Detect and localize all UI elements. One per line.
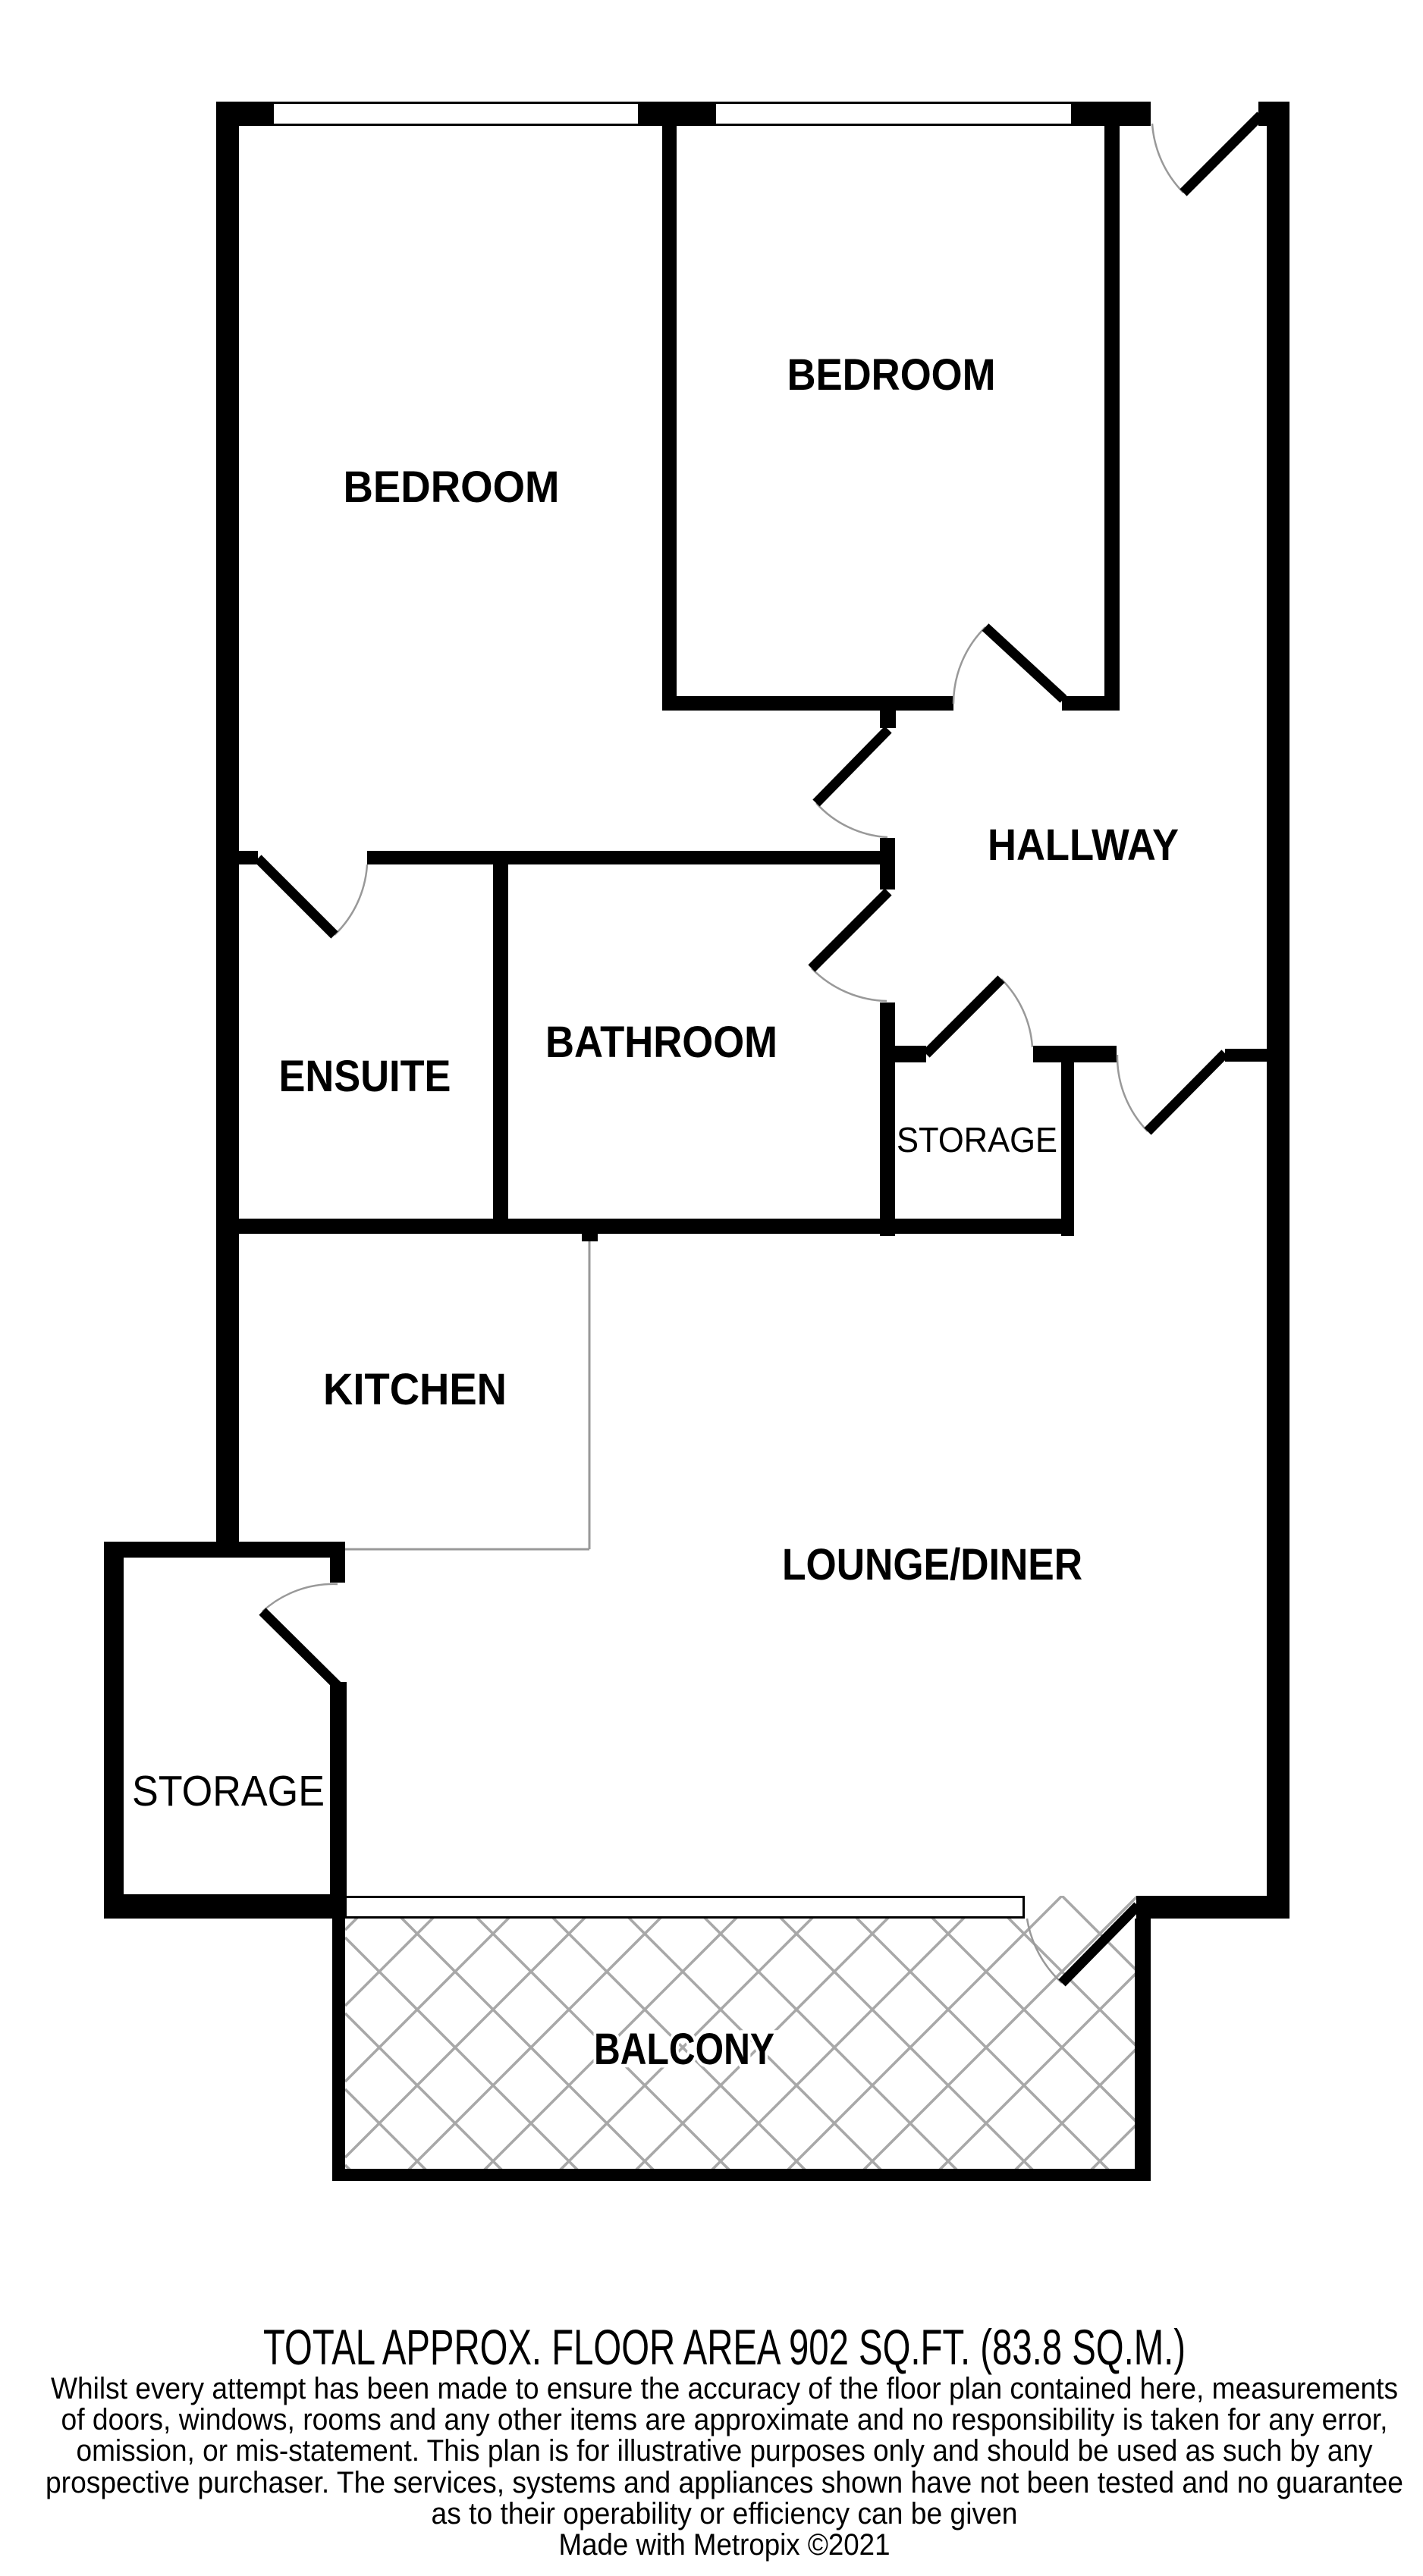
svg-text:KITCHEN: KITCHEN [323, 1365, 507, 1414]
svg-text:as to their operability or eff: as to their operability or efficiency ca… [432, 2497, 1018, 2531]
svg-text:omission, or mis-statement. Th: omission, or mis-statement. This plan is… [77, 2434, 1373, 2468]
svg-text:STORAGE: STORAGE [132, 1767, 325, 1815]
svg-text:LOUNGE/DINER: LOUNGE/DINER [782, 1540, 1082, 1589]
svg-text:HALLWAY: HALLWAY [988, 820, 1179, 870]
svg-text:prospective purchaser. The ser: prospective purchaser. The services, sys… [46, 2466, 1403, 2499]
svg-text:BATHROOM: BATHROOM [545, 1018, 777, 1067]
svg-text:Made with Metropix ©2021: Made with Metropix ©2021 [559, 2528, 891, 2562]
svg-text:Whilst every attempt has been: Whilst every attempt has been made to en… [51, 2372, 1398, 2405]
svg-text:ENSUITE: ENSUITE [279, 1052, 451, 1101]
svg-text:STORAGE: STORAGE [897, 1120, 1057, 1159]
svg-text:BALCONY: BALCONY [594, 2025, 774, 2074]
svg-text:BEDROOM: BEDROOM [787, 350, 996, 400]
svg-text:TOTAL APPROX. FLOOR AREA 902 S: TOTAL APPROX. FLOOR AREA 902 SQ.FT. (83.… [263, 2319, 1186, 2375]
svg-text:of doors, windows, rooms and a: of doors, windows, rooms and any other i… [61, 2403, 1388, 2436]
svg-text:BEDROOM: BEDROOM [344, 463, 560, 512]
